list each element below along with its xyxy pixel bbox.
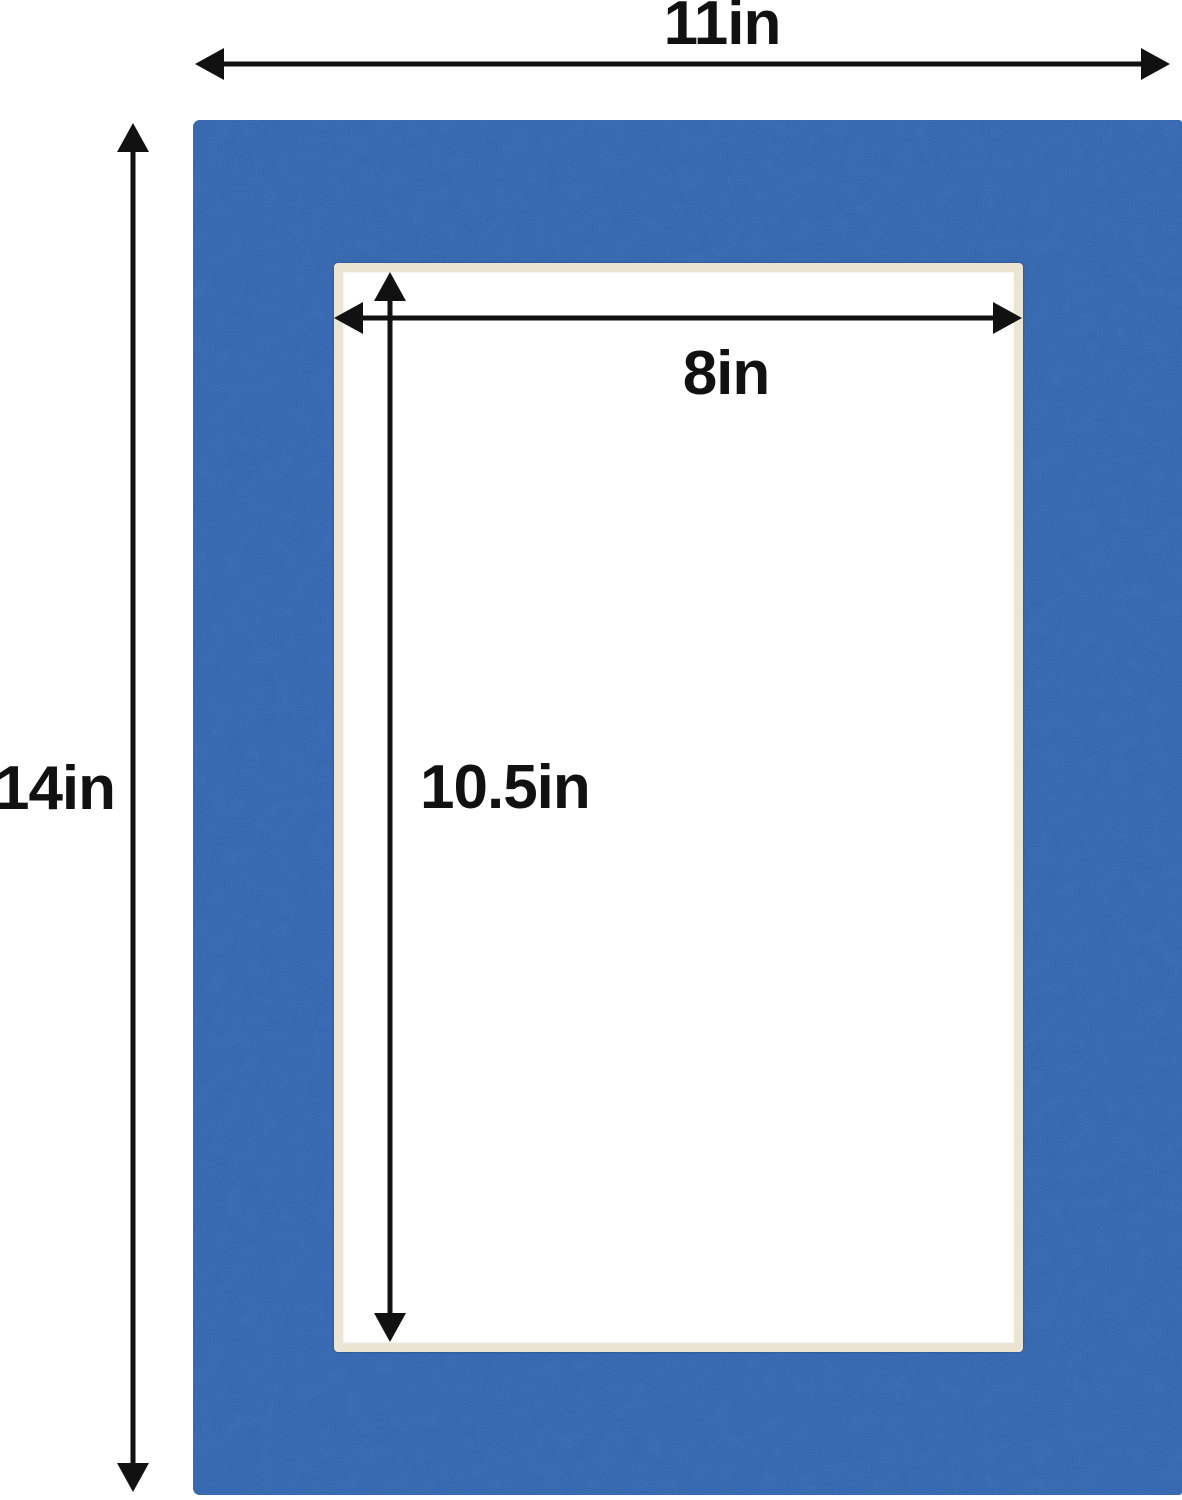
window-height-arrow [373,272,407,1342]
diagram-canvas: 11in 14in 8in 10.5in [0,0,1182,1500]
arrowhead-down-icon [117,1463,149,1492]
arrow-shaft [356,316,1000,321]
arrow-shaft [131,145,136,1470]
arrowhead-right-icon [1141,48,1170,80]
outer-height-label: 14in [0,758,115,820]
arrow-shaft [388,294,393,1320]
window-width-arrow [334,301,1022,335]
outer-height-arrow [116,123,150,1492]
arrow-shaft [217,62,1148,67]
window-width-label: 8in [683,343,770,405]
window-height-label: 10.5in [420,757,590,819]
arrowhead-right-icon [993,302,1022,334]
outer-width-label: 11in [664,0,781,55]
arrowhead-down-icon [374,1313,406,1342]
